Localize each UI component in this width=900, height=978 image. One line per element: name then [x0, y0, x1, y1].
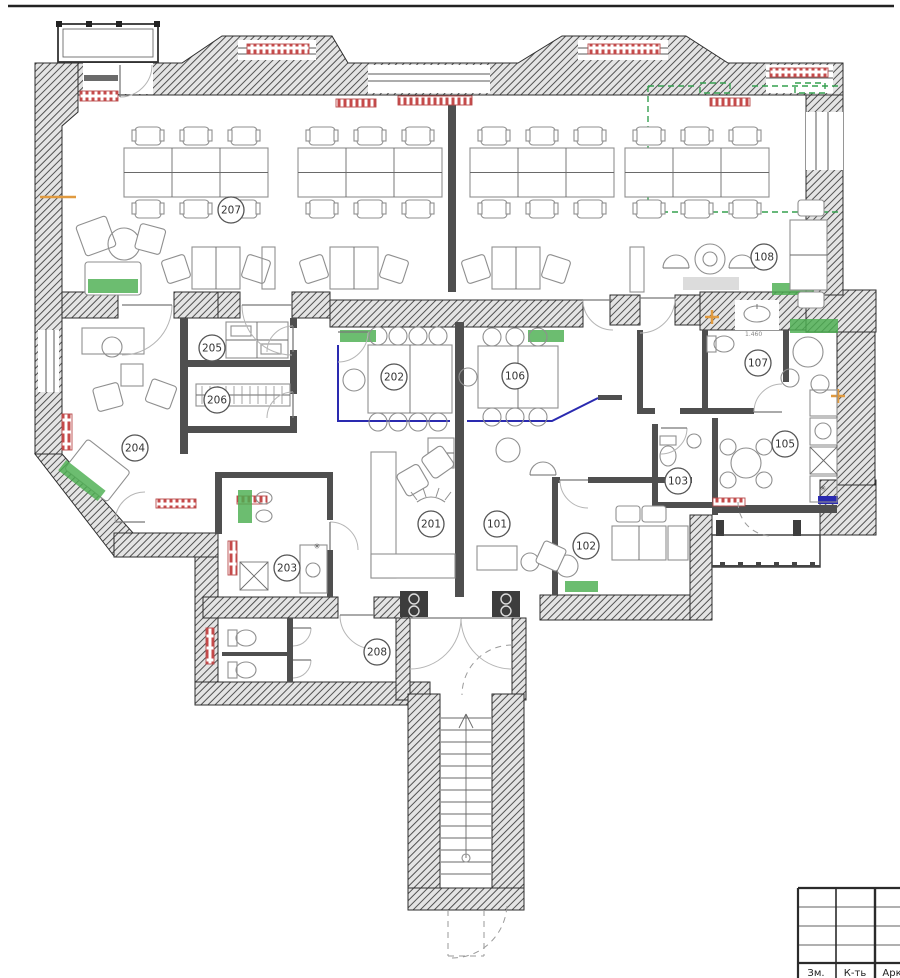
blue-marker [818, 496, 838, 504]
room-label-204: 204 [122, 435, 148, 461]
svg-text:103: 103 [668, 476, 688, 488]
dimension-label: 1.460 [745, 331, 762, 338]
room-label-103: 103 [665, 468, 691, 494]
svg-text:202: 202 [384, 372, 404, 384]
title-block: Зм. К-ть Арк [798, 888, 900, 978]
svg-text:201: 201 [421, 519, 441, 531]
floor-plan-page: 2071082052062021061072041051032011011022… [0, 0, 900, 978]
svg-text:204: 204 [125, 443, 145, 455]
room-label-105: 105 [772, 431, 798, 457]
porch [712, 520, 820, 567]
room-label-206: 206 [204, 387, 230, 413]
titleblock-col-zm: Зм. [807, 968, 824, 978]
room-label-101: 101 [484, 511, 510, 537]
svg-text:102: 102 [576, 541, 596, 553]
vent-symbol: ✳ [820, 484, 827, 493]
titleblock-col-ark: Арк [882, 968, 900, 978]
svg-text:105: 105 [775, 439, 795, 451]
room-label-106: 106 [502, 363, 528, 389]
svg-text:207: 207 [221, 205, 241, 217]
room-label-208: 208 [364, 639, 390, 665]
room-label-108: 108 [751, 244, 777, 270]
room-label-207: 207 [218, 197, 244, 223]
svg-text:106: 106 [505, 371, 525, 383]
room-label-102: 102 [573, 533, 599, 559]
room-label-202: 202 [381, 364, 407, 390]
room-label-107: 107 [745, 350, 771, 376]
vent-symbol: ✳ [314, 542, 321, 551]
rug [683, 277, 739, 290]
floor-plan-canvas: 2071082052062021061072041051032011011022… [0, 0, 900, 978]
room-label-201: 201 [418, 511, 444, 537]
room-label-205: 205 [199, 335, 225, 361]
svg-text:107: 107 [748, 358, 768, 370]
svg-text:203: 203 [277, 563, 297, 575]
svg-text:101: 101 [487, 519, 507, 531]
svg-text:108: 108 [754, 252, 774, 264]
svg-text:205: 205 [202, 343, 222, 355]
staircase [441, 714, 491, 874]
titleblock-col-kt: К-ть [844, 968, 867, 978]
svg-text:208: 208 [367, 647, 387, 659]
svg-text:206: 206 [207, 395, 227, 407]
room-label-203: 203 [274, 555, 300, 581]
